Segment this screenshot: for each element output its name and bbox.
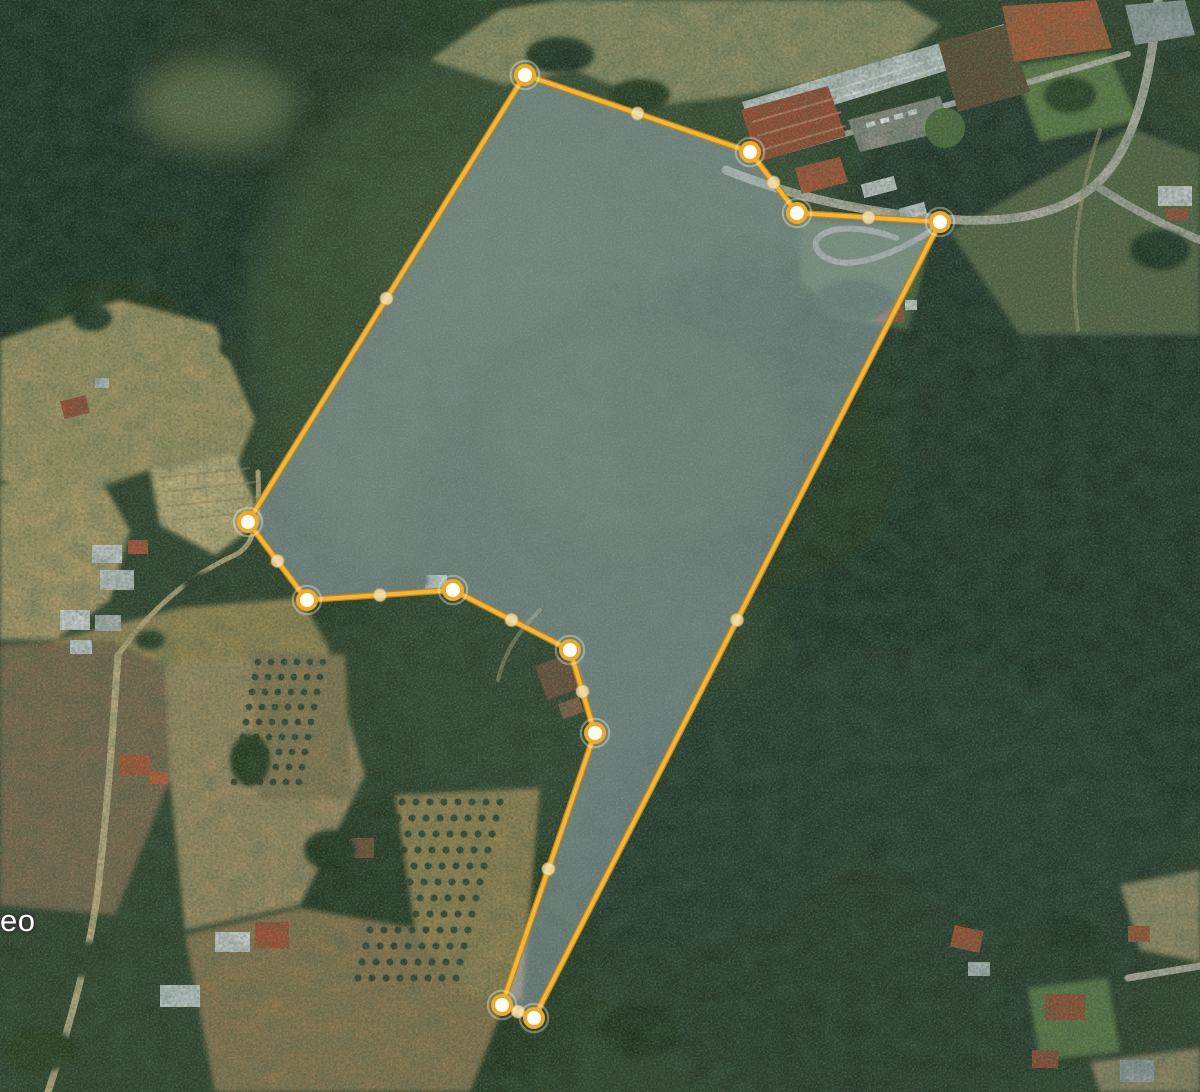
polygon-vertex-handle[interactable]: [788, 204, 806, 222]
polygon-vertex-handle[interactable]: [931, 213, 949, 231]
polygon-midpoint-handle[interactable]: [576, 685, 589, 698]
place-label: eo: [0, 903, 35, 939]
polygon-midpoint-handle[interactable]: [862, 211, 875, 224]
polygon-vertex-handle[interactable]: [516, 66, 534, 84]
polygon-vertex-handle[interactable]: [586, 724, 604, 742]
polygon-midpoint-handle[interactable]: [271, 555, 284, 568]
polygon-midpoint-handle[interactable]: [374, 589, 387, 602]
polygon-vertex-handle[interactable]: [239, 513, 257, 531]
polygon-vertex-handle[interactable]: [525, 1009, 543, 1027]
polygon-midpoint-handle[interactable]: [380, 292, 393, 305]
polygon-vertex-handle[interactable]: [444, 581, 462, 599]
polygon-vertex-handle[interactable]: [741, 143, 759, 161]
polygon-midpoint-handle[interactable]: [631, 107, 644, 120]
polygon-vertex-handle[interactable]: [561, 641, 579, 659]
polygon-midpoint-handle[interactable]: [542, 863, 555, 876]
polygon-midpoint-handle[interactable]: [767, 176, 780, 189]
polygon-vertex-handle[interactable]: [493, 996, 511, 1014]
polygon-midpoint-handle[interactable]: [731, 614, 744, 627]
satellite-map-viewport[interactable]: eo: [0, 0, 1200, 1092]
polygon-vertex-handle[interactable]: [298, 591, 316, 609]
polygon-midpoint-handle[interactable]: [505, 614, 518, 627]
polygon-overlay: [0, 0, 1200, 1092]
